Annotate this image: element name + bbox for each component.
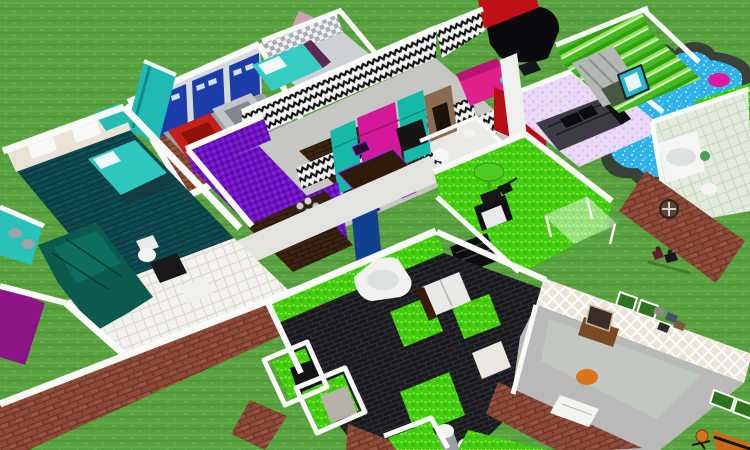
toilet-mint[interactable]	[701, 183, 717, 195]
bottle	[297, 203, 304, 210]
plant-green	[700, 151, 710, 161]
3d-viewport[interactable]	[0, 0, 750, 450]
pouf-orange[interactable]	[576, 369, 598, 385]
corner-bathtub-inner	[367, 270, 399, 290]
bottle	[305, 198, 312, 205]
person-head	[656, 247, 661, 252]
kids-round-table[interactable]	[474, 163, 504, 181]
pouf-magenta[interactable]	[708, 73, 730, 87]
office-chair-seat[interactable]	[696, 430, 708, 442]
bathtub-inner	[666, 148, 696, 166]
sink-powder[interactable]	[463, 129, 475, 138]
toilet-powder[interactable]	[433, 149, 449, 162]
vanity-sink	[8, 228, 22, 238]
scene-svg	[0, 0, 750, 450]
toilet-master[interactable]	[138, 248, 156, 262]
vanity-sink	[21, 239, 35, 249]
person-head	[668, 250, 673, 255]
